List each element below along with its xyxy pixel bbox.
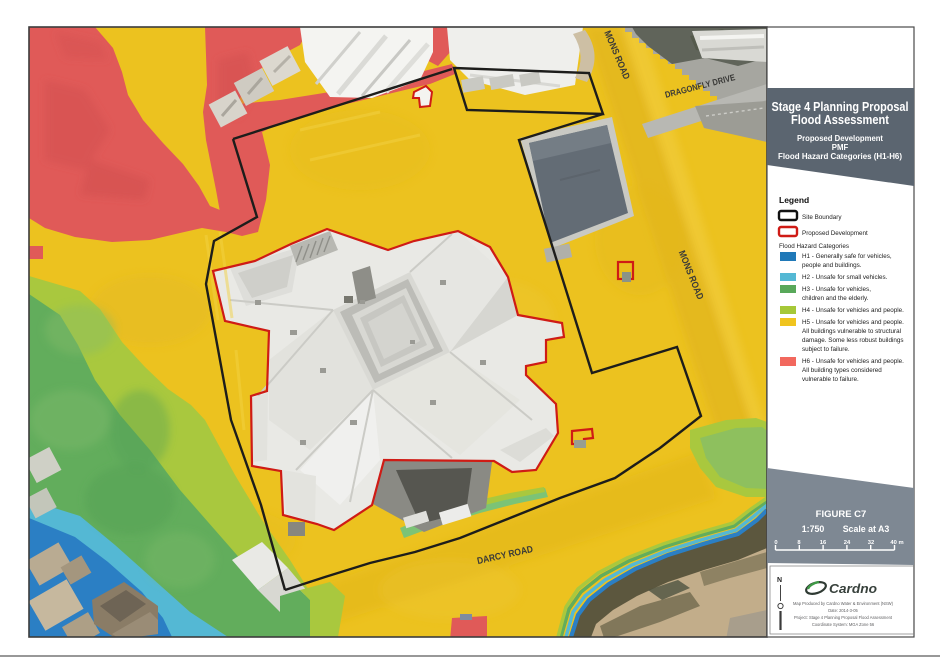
svg-text:Map Produced by Cardno Water &: Map Produced by Cardno Water & Environme… (793, 601, 894, 606)
svg-text:Site Boundary: Site Boundary (802, 214, 842, 221)
svg-text:Date: 2014-3-05: Date: 2014-3-05 (828, 608, 858, 613)
svg-text:children and the elderly.: children and the elderly. (802, 295, 869, 302)
svg-text:Legend: Legend (779, 195, 809, 205)
svg-text:Flood Hazard Categories: Flood Hazard Categories (779, 243, 849, 250)
svg-text:Scale at A3: Scale at A3 (843, 524, 890, 534)
svg-text:Proposed Development: Proposed Development (797, 134, 883, 143)
svg-text:H2 - Unsafe for small vehicles: H2 - Unsafe for small vehicles. (802, 274, 888, 281)
svg-text:1:750: 1:750 (802, 524, 825, 534)
svg-text:H3 - Unsafe for vehicles,: H3 - Unsafe for vehicles, (802, 286, 871, 293)
svg-text:Cardno: Cardno (829, 581, 877, 596)
svg-text:FIGURE C7: FIGURE C7 (816, 509, 867, 520)
svg-text:Flood Hazard Categories (H1-H6: Flood Hazard Categories (H1-H6) (778, 152, 902, 161)
svg-text:N: N (777, 577, 782, 584)
svg-text:40 m: 40 m (890, 540, 903, 546)
svg-text:people and buildings.: people and buildings. (802, 262, 862, 269)
svg-text:damage. Some less robust build: damage. Some less robust buildings (802, 337, 904, 344)
svg-text:vulnerable to failure.: vulnerable to failure. (802, 376, 859, 383)
svg-text:H1 - Generally safe for vehicl: H1 - Generally safe for vehicles, (802, 253, 892, 260)
svg-text:Project: Stage 4 Planning Prop: Project: Stage 4 Planning Proposal Flood… (794, 615, 893, 620)
svg-text:Stage 4 Planning Proposal: Stage 4 Planning Proposal (772, 100, 909, 114)
svg-text:H6 - Unsafe for vehicles and p: H6 - Unsafe for vehicles and people. (802, 358, 904, 365)
svg-text:All buildings vulnerable to st: All buildings vulnerable to structural (802, 328, 901, 335)
svg-text:All building types considered: All building types considered (802, 367, 882, 374)
svg-text:PMF: PMF (832, 143, 849, 152)
svg-text:Proposed Development: Proposed Development (802, 230, 868, 237)
svg-text:subject to failure.: subject to failure. (802, 346, 850, 353)
svg-text:H4 - Unsafe for vehicles and p: H4 - Unsafe for vehicles and people. (802, 307, 904, 314)
svg-text:Coordinate System: MGA Zone 56: Coordinate System: MGA Zone 56 (812, 622, 875, 627)
svg-text:H5 - Unsafe for vehicles and p: H5 - Unsafe for vehicles and people. (802, 319, 904, 326)
svg-text:Flood Assessment: Flood Assessment (791, 113, 890, 127)
